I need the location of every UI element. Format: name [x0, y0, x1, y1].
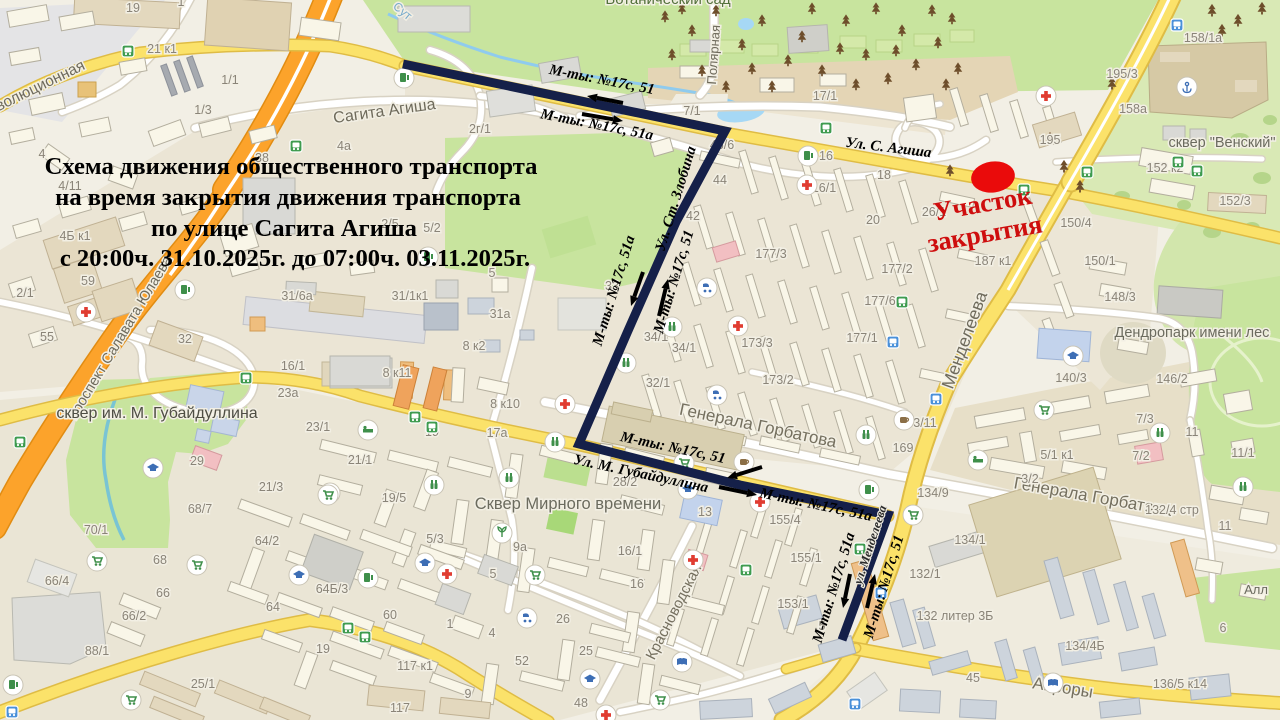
svg-text:132/4 стр: 132/4 стр [1145, 503, 1199, 517]
svg-text:по улице Сагита Агиша: по улице Сагита Агиша [151, 215, 417, 242]
svg-text:17а: 17а [487, 426, 508, 440]
svg-text:21 к1: 21 к1 [147, 42, 177, 56]
svg-text:134/4Б: 134/4Б [1065, 639, 1104, 653]
svg-text:23/1: 23/1 [306, 420, 330, 434]
svg-text:155/1: 155/1 [790, 551, 821, 565]
svg-text:117 к1: 117 к1 [397, 659, 433, 673]
svg-text:155/4: 155/4 [769, 513, 800, 527]
svg-text:16: 16 [630, 577, 644, 591]
svg-text:158а: 158а [1119, 102, 1147, 116]
svg-text:Дендропарк имени лес: Дендропарк имени лес [1115, 325, 1270, 341]
svg-text:59: 59 [81, 274, 95, 288]
svg-text:146/2: 146/2 [1156, 372, 1187, 386]
svg-text:11: 11 [1186, 425, 1199, 439]
svg-text:195: 195 [1040, 133, 1061, 147]
svg-text:4: 4 [489, 626, 496, 640]
svg-text:17/1: 17/1 [813, 89, 837, 103]
svg-text:66/2: 66/2 [122, 609, 146, 623]
svg-text:148/3: 148/3 [1104, 290, 1135, 304]
svg-text:32/1: 32/1 [646, 376, 670, 390]
svg-text:68/7: 68/7 [188, 502, 212, 516]
svg-text:25/1: 25/1 [191, 677, 215, 691]
svg-text:150/1: 150/1 [1084, 254, 1115, 268]
svg-text:5: 5 [490, 567, 497, 581]
svg-text:150/4: 150/4 [1060, 216, 1091, 230]
svg-text:70/1: 70/1 [84, 523, 108, 537]
svg-text:сквер им. М. Губайдуллина: сквер им. М. Губайдуллина [56, 405, 257, 422]
svg-text:23а: 23а [278, 386, 299, 400]
svg-text:1: 1 [178, 0, 185, 9]
svg-text:48: 48 [574, 696, 588, 710]
svg-text:6: 6 [1220, 621, 1227, 635]
svg-text:132 литер 3Б: 132 литер 3Б [917, 609, 994, 623]
svg-text:19/5: 19/5 [382, 491, 406, 505]
svg-text:140/3: 140/3 [1055, 371, 1086, 385]
svg-text:с 20:00ч. 31.10.2025г. до 07:0: с 20:00ч. 31.10.2025г. до 07:00ч. 03.11.… [60, 245, 530, 272]
svg-text:158/1а: 158/1а [1184, 31, 1222, 45]
svg-text:8 к11: 8 к11 [383, 366, 412, 380]
svg-text:25: 25 [579, 644, 593, 658]
svg-text:1: 1 [447, 617, 454, 631]
svg-text:132/1: 132/1 [909, 567, 940, 581]
svg-text:31а: 31а [490, 307, 511, 321]
svg-text:4Б к1: 4Б к1 [59, 229, 90, 243]
svg-text:сквер "Венский": сквер "Венский" [1168, 135, 1275, 151]
svg-text:64/2: 64/2 [255, 534, 279, 548]
svg-text:на время закрытия движения тра: на время закрытия движения транспорта [55, 184, 521, 211]
svg-text:5/3: 5/3 [426, 532, 443, 546]
svg-text:88/1: 88/1 [85, 644, 109, 658]
svg-text:26: 26 [556, 612, 570, 626]
svg-text:19: 19 [126, 1, 140, 15]
svg-text:64: 64 [266, 600, 280, 614]
svg-text:55: 55 [40, 330, 54, 344]
svg-text:66/4: 66/4 [45, 574, 69, 588]
svg-text:7/3: 7/3 [1136, 412, 1153, 426]
svg-text:8 к2: 8 к2 [463, 339, 486, 353]
svg-text:16/1: 16/1 [281, 359, 305, 373]
svg-text:187 к1: 187 к1 [975, 254, 1012, 268]
svg-text:32: 32 [178, 332, 192, 346]
svg-text:177/6: 177/6 [864, 294, 895, 308]
svg-text:195/3: 195/3 [1106, 67, 1137, 81]
svg-text:169: 169 [893, 441, 914, 455]
svg-text:18: 18 [877, 168, 891, 182]
svg-text:177/2: 177/2 [881, 262, 912, 276]
svg-text:11/1: 11/1 [1231, 446, 1254, 460]
svg-text:1/3: 1/3 [194, 103, 211, 117]
svg-text:1/1: 1/1 [221, 73, 238, 87]
svg-text:2/1: 2/1 [16, 286, 33, 300]
svg-text:68: 68 [153, 553, 167, 567]
svg-text:34/1: 34/1 [672, 341, 696, 355]
svg-text:21/3: 21/3 [259, 480, 283, 494]
svg-text:21/1: 21/1 [348, 453, 372, 467]
svg-text:7/1: 7/1 [683, 104, 700, 118]
svg-text:31/6а: 31/6а [281, 289, 312, 303]
svg-text:45: 45 [966, 671, 980, 685]
svg-text:Сквер Мирного времени: Сквер Мирного времени [475, 495, 661, 513]
svg-text:2г/1: 2г/1 [469, 122, 491, 136]
svg-text:16: 16 [819, 149, 833, 163]
svg-text:5/2: 5/2 [423, 221, 440, 235]
svg-text:44: 44 [713, 173, 727, 187]
svg-text:42: 42 [686, 209, 700, 223]
svg-text:134/9: 134/9 [917, 486, 948, 500]
svg-text:153/1: 153/1 [777, 597, 808, 611]
svg-text:31/1к1: 31/1к1 [392, 289, 429, 303]
svg-text:4а: 4а [337, 139, 351, 153]
svg-text:13: 13 [698, 505, 712, 519]
svg-text:29: 29 [190, 454, 204, 468]
svg-text:173/3: 173/3 [741, 336, 772, 350]
svg-text:19: 19 [316, 642, 330, 656]
svg-text:Алл: Алл [1244, 582, 1268, 597]
svg-text:Схема движения общественного т: Схема движения общественного транспорта [45, 153, 538, 180]
svg-text:20: 20 [866, 213, 880, 227]
svg-text:9: 9 [465, 687, 472, 701]
svg-text:7/2: 7/2 [1132, 449, 1149, 463]
svg-text:177/1: 177/1 [846, 331, 877, 345]
svg-text:134/1: 134/1 [954, 533, 985, 547]
svg-text:66: 66 [156, 586, 170, 600]
svg-text:Ботанический сад: Ботанический сад [605, 0, 731, 8]
svg-text:117: 117 [390, 701, 410, 715]
svg-text:52: 52 [515, 654, 529, 668]
svg-text:64Б/3: 64Б/3 [316, 582, 349, 596]
svg-text:11: 11 [1219, 519, 1232, 533]
svg-text:5/1 к1: 5/1 к1 [1040, 448, 1073, 462]
svg-text:136/5 к14: 136/5 к14 [1153, 677, 1207, 691]
svg-text:3/2: 3/2 [1021, 472, 1038, 486]
svg-text:152/3: 152/3 [1219, 194, 1250, 208]
svg-text:173/2: 173/2 [762, 373, 793, 387]
svg-text:177/3: 177/3 [755, 247, 786, 261]
svg-text:60: 60 [383, 608, 397, 622]
svg-text:16/1: 16/1 [618, 544, 642, 558]
svg-text:9а: 9а [513, 540, 527, 554]
svg-text:8 к10: 8 к10 [490, 397, 520, 411]
